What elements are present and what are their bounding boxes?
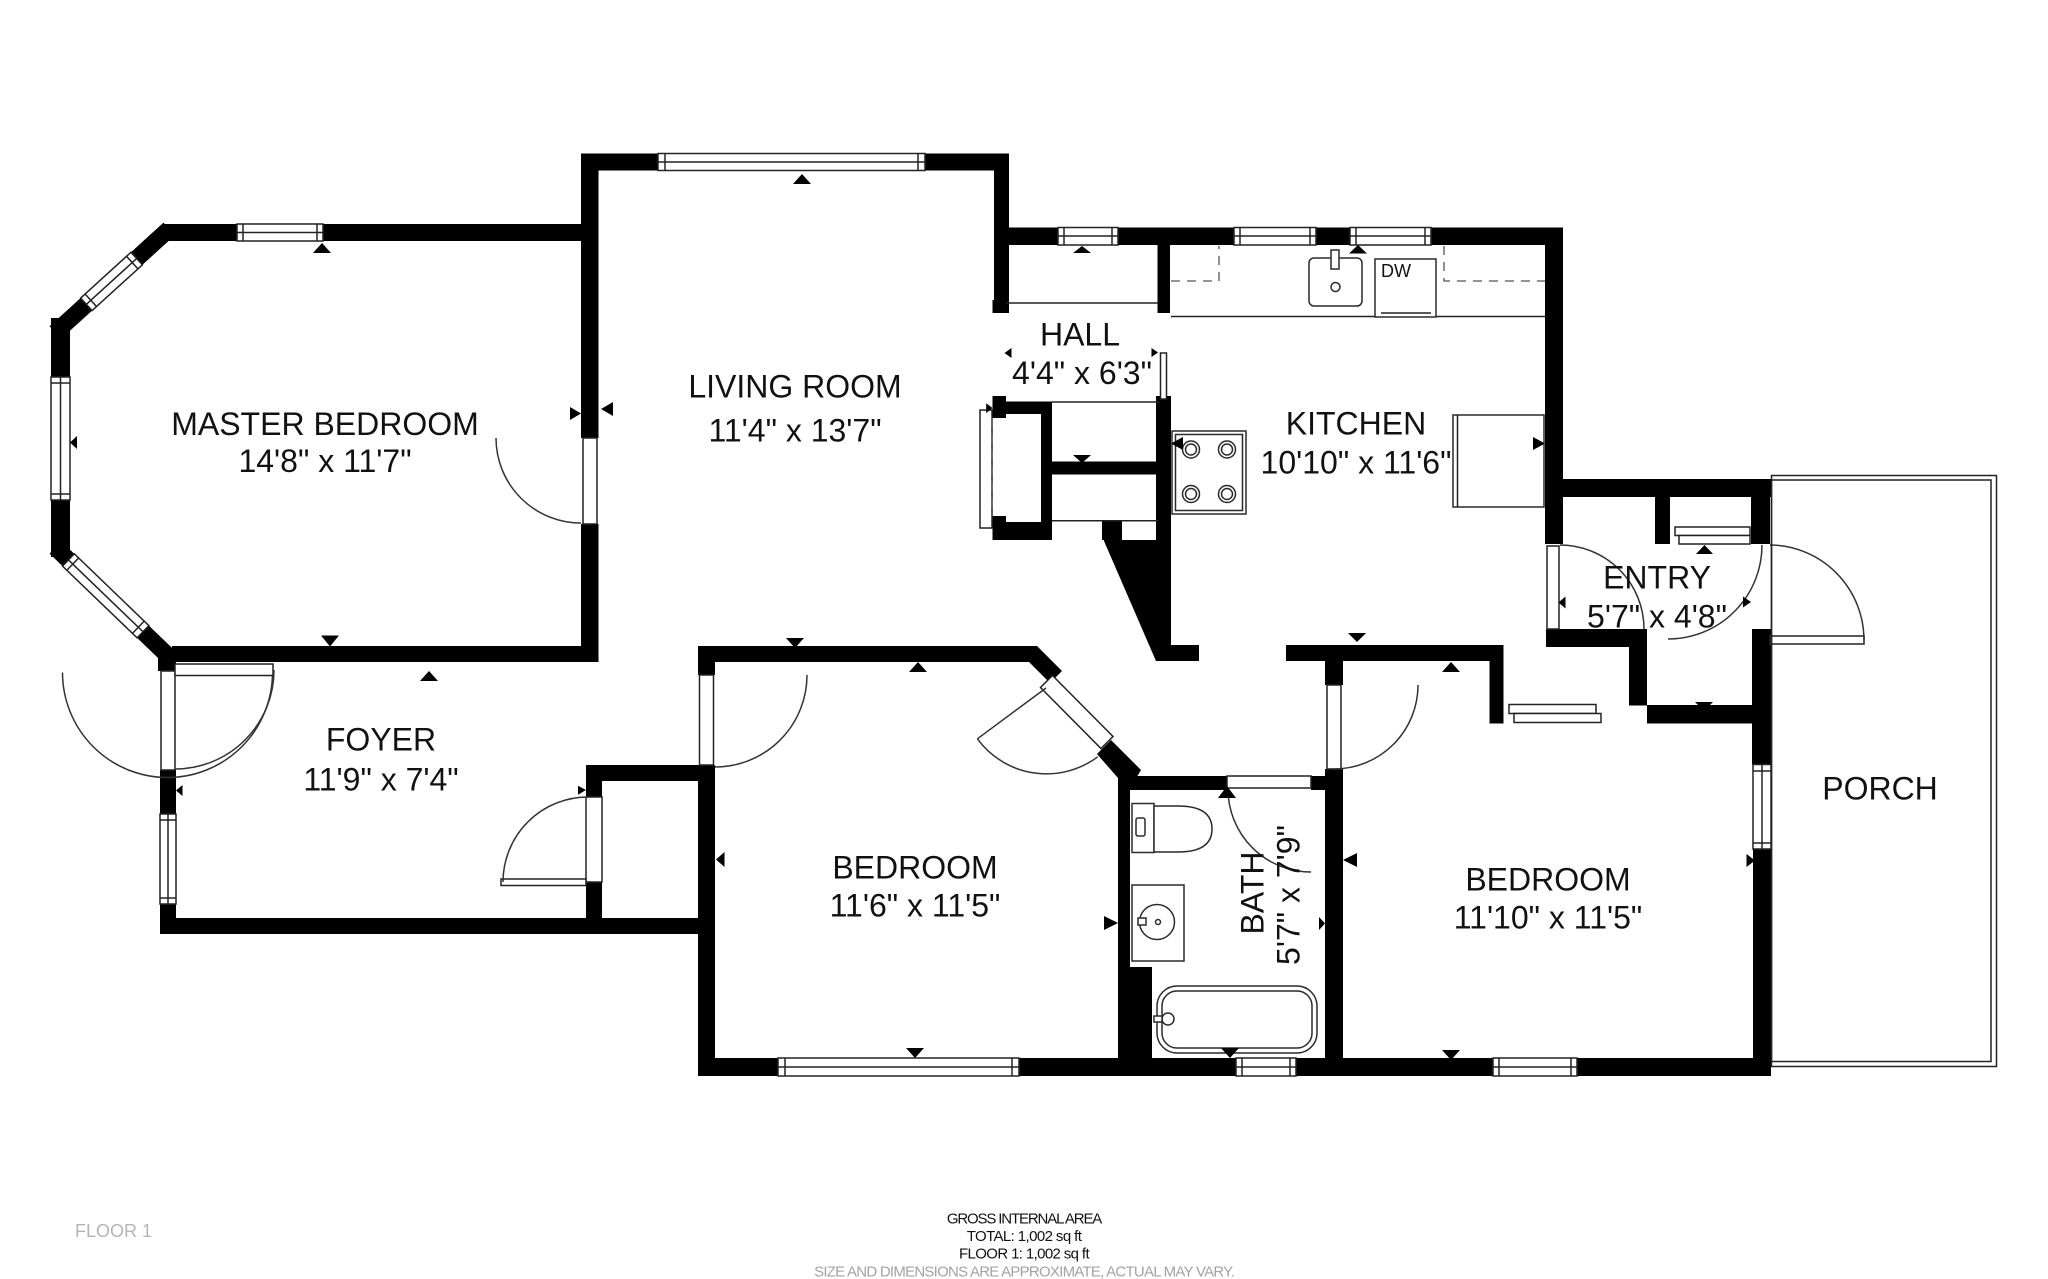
svg-text:LIVING ROOM: LIVING ROOM [688,369,901,405]
svg-text:11'6" x 11'5": 11'6" x 11'5" [830,888,1001,924]
svg-text:FOYER: FOYER [326,722,436,758]
svg-text:5'7" x 4'8": 5'7" x 4'8" [1587,599,1727,635]
svg-text:GROSS INTERNAL AREA: GROSS INTERNAL AREA [947,1211,1102,1228]
svg-text:11'9" x 7'4": 11'9" x 7'4" [303,762,458,798]
svg-text:BEDROOM: BEDROOM [832,850,997,886]
svg-text:5'7" x 7'9": 5'7" x 7'9" [1271,825,1307,965]
svg-text:ENTRY: ENTRY [1603,560,1711,596]
svg-text:11'10" x 11'5": 11'10" x 11'5" [1454,900,1643,936]
svg-text:BEDROOM: BEDROOM [1465,862,1630,898]
svg-text:BATH: BATH [1235,852,1271,935]
svg-text:4'4" x 6'3": 4'4" x 6'3" [1012,355,1152,391]
svg-text:KITCHEN: KITCHEN [1286,406,1426,442]
svg-text:HALL: HALL [1040,317,1120,353]
svg-text:PORCH: PORCH [1822,771,1938,807]
svg-text:SIZE AND DIMENSIONS ARE APPROX: SIZE AND DIMENSIONS ARE APPROXIMATE, ACT… [814,1264,1234,1279]
svg-text:11'4" x 13'7": 11'4" x 13'7" [708,413,881,449]
svg-text:MASTER BEDROOM: MASTER BEDROOM [171,406,479,442]
svg-text:DW: DW [1381,261,1411,281]
svg-text:TOTAL: 1,002 sq ft: TOTAL: 1,002 sq ft [967,1228,1083,1245]
svg-text:FLOOR 1: FLOOR 1 [75,1221,152,1241]
svg-text:14'8" x 11'7": 14'8" x 11'7" [238,443,411,479]
svg-text:FLOOR 1: 1,002 sq ft: FLOOR 1: 1,002 sq ft [959,1246,1090,1263]
svg-text:10'10" x 11'6": 10'10" x 11'6" [1261,445,1452,481]
